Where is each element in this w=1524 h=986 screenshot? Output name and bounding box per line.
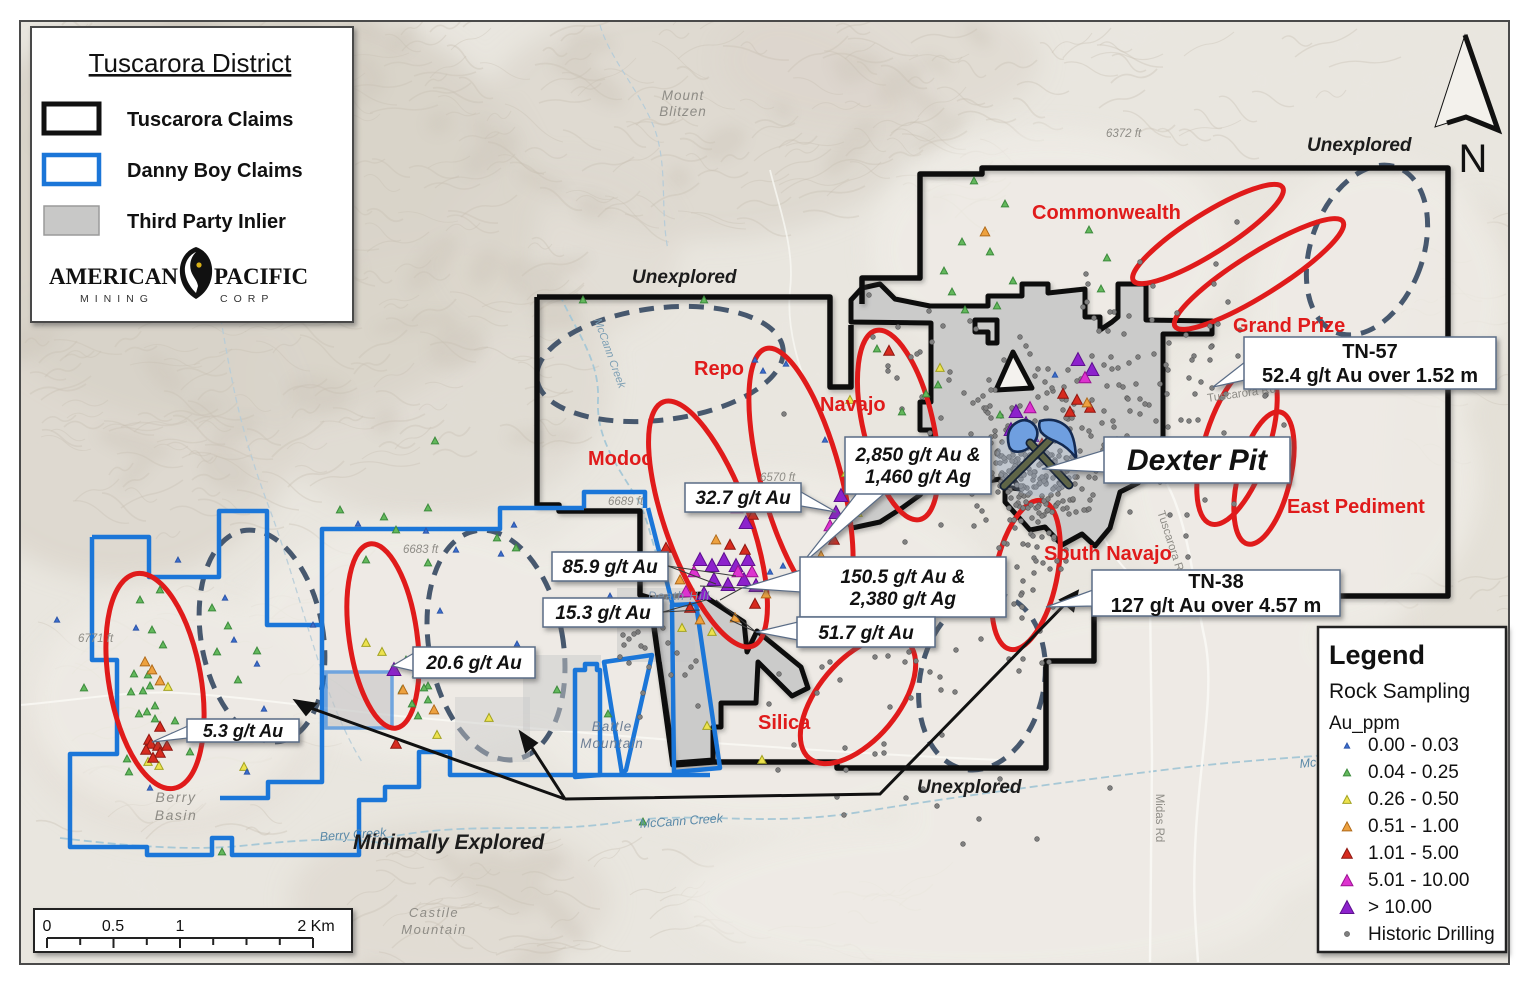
svg-text:Mountain: Mountain (401, 922, 466, 937)
svg-text:0.00 - 0.03: 0.00 - 0.03 (1368, 735, 1459, 756)
svg-text:5.3 g/t Au: 5.3 g/t Au (203, 721, 283, 741)
svg-text:Unexplored: Unexplored (917, 777, 1022, 798)
svg-text:1,460 g/t Ag: 1,460 g/t Ag (865, 467, 971, 488)
svg-text:Unexplored: Unexplored (632, 267, 737, 288)
svg-text:Minimally Explored: Minimally Explored (353, 831, 546, 854)
svg-text:Tuscarora District: Tuscarora District (89, 48, 293, 78)
svg-text:1: 1 (176, 918, 185, 935)
svg-text:Battle: Battle (592, 719, 633, 734)
svg-text:Unexplored: Unexplored (1307, 135, 1412, 156)
svg-text:6689 ft: 6689 ft (608, 496, 644, 508)
svg-text:Navajo: Navajo (820, 394, 886, 416)
svg-text:6683 ft: 6683 ft (403, 544, 439, 556)
svg-text:Legend: Legend (1329, 640, 1425, 670)
svg-text:0.5: 0.5 (102, 918, 124, 935)
svg-text:Berry: Berry (156, 789, 197, 805)
svg-text:N: N (1459, 137, 1488, 181)
svg-text:2 Km: 2 Km (297, 918, 334, 935)
svg-text:Midas Rd: Midas Rd (1153, 794, 1165, 843)
svg-text:Third Party Inlier: Third Party Inlier (127, 211, 286, 233)
svg-text:Tuscarora Claims: Tuscarora Claims (127, 109, 293, 131)
svg-text:51.7 g/t Au: 51.7 g/t Au (818, 623, 914, 644)
svg-text:East Pediment: East Pediment (1287, 496, 1425, 518)
svg-text:0.51 - 1.00: 0.51 - 1.00 (1368, 816, 1459, 837)
svg-text:0.04 - 0.25: 0.04 - 0.25 (1368, 762, 1459, 783)
svg-text:Commonwealth: Commonwealth (1032, 202, 1181, 224)
svg-text:15.3 g/t Au: 15.3 g/t Au (555, 603, 651, 624)
svg-text:6372 ft: 6372 ft (1106, 128, 1142, 140)
svg-text:Grand Prize: Grand Prize (1233, 315, 1345, 337)
svg-text:> 10.00: > 10.00 (1368, 897, 1432, 918)
svg-text:Repo: Repo (694, 358, 744, 380)
svg-text:5.01 - 10.00: 5.01 - 10.00 (1368, 870, 1469, 891)
svg-text:6771 ft: 6771 ft (78, 633, 114, 645)
svg-text:Rock Sampling: Rock Sampling (1329, 680, 1470, 703)
svg-text:Historic Drilling: Historic Drilling (1368, 924, 1495, 945)
svg-text:TN-57: TN-57 (1342, 341, 1398, 363)
svg-text:52.4 g/t Au over 1.52 m: 52.4 g/t Au over 1.52 m (1262, 365, 1478, 387)
svg-text:AMERICAN: AMERICAN (49, 264, 178, 289)
svg-text:0.26 - 0.50: 0.26 - 0.50 (1368, 789, 1459, 810)
svg-text:127 g/t Au over 4.57 m: 127 g/t Au over 4.57 m (1111, 595, 1321, 617)
svg-text:Mount: Mount (662, 88, 705, 103)
svg-text:6570 ft: 6570 ft (760, 472, 796, 484)
svg-text:MINING: MINING (80, 293, 154, 305)
svg-text:150.5 g/t Au &: 150.5 g/t Au & (841, 567, 966, 588)
svg-text:Dexter Pit: Dexter Pit (1127, 444, 1269, 477)
svg-text:PACIFIC: PACIFIC (214, 264, 308, 289)
svg-text:Danny Boy Claims: Danny Boy Claims (127, 160, 303, 182)
svg-text:1.01 - 5.00: 1.01 - 5.00 (1368, 843, 1459, 864)
svg-text:2,380 g/t Ag: 2,380 g/t Ag (849, 589, 956, 610)
svg-text:20.6 g/t Au: 20.6 g/t Au (425, 653, 522, 674)
svg-text:TN-38: TN-38 (1188, 571, 1244, 593)
svg-text:Blitzen: Blitzen (659, 104, 707, 119)
svg-text:Au_ppm: Au_ppm (1329, 713, 1400, 734)
svg-text:0: 0 (43, 918, 52, 935)
svg-text:32.7 g/t Au: 32.7 g/t Au (695, 488, 791, 509)
svg-text:Silica: Silica (758, 712, 811, 734)
svg-text:2,850 g/t Au &: 2,850 g/t Au & (855, 445, 981, 466)
svg-text:Basin: Basin (155, 807, 198, 823)
svg-text:85.9 g/t Au: 85.9 g/t Au (562, 557, 658, 578)
svg-text:South Navajo: South Navajo (1044, 543, 1172, 565)
svg-text:CORP: CORP (220, 293, 274, 305)
svg-text:Modoc: Modoc (588, 448, 652, 470)
svg-text:Castile: Castile (409, 905, 459, 920)
svg-text:Mountain: Mountain (580, 736, 644, 751)
